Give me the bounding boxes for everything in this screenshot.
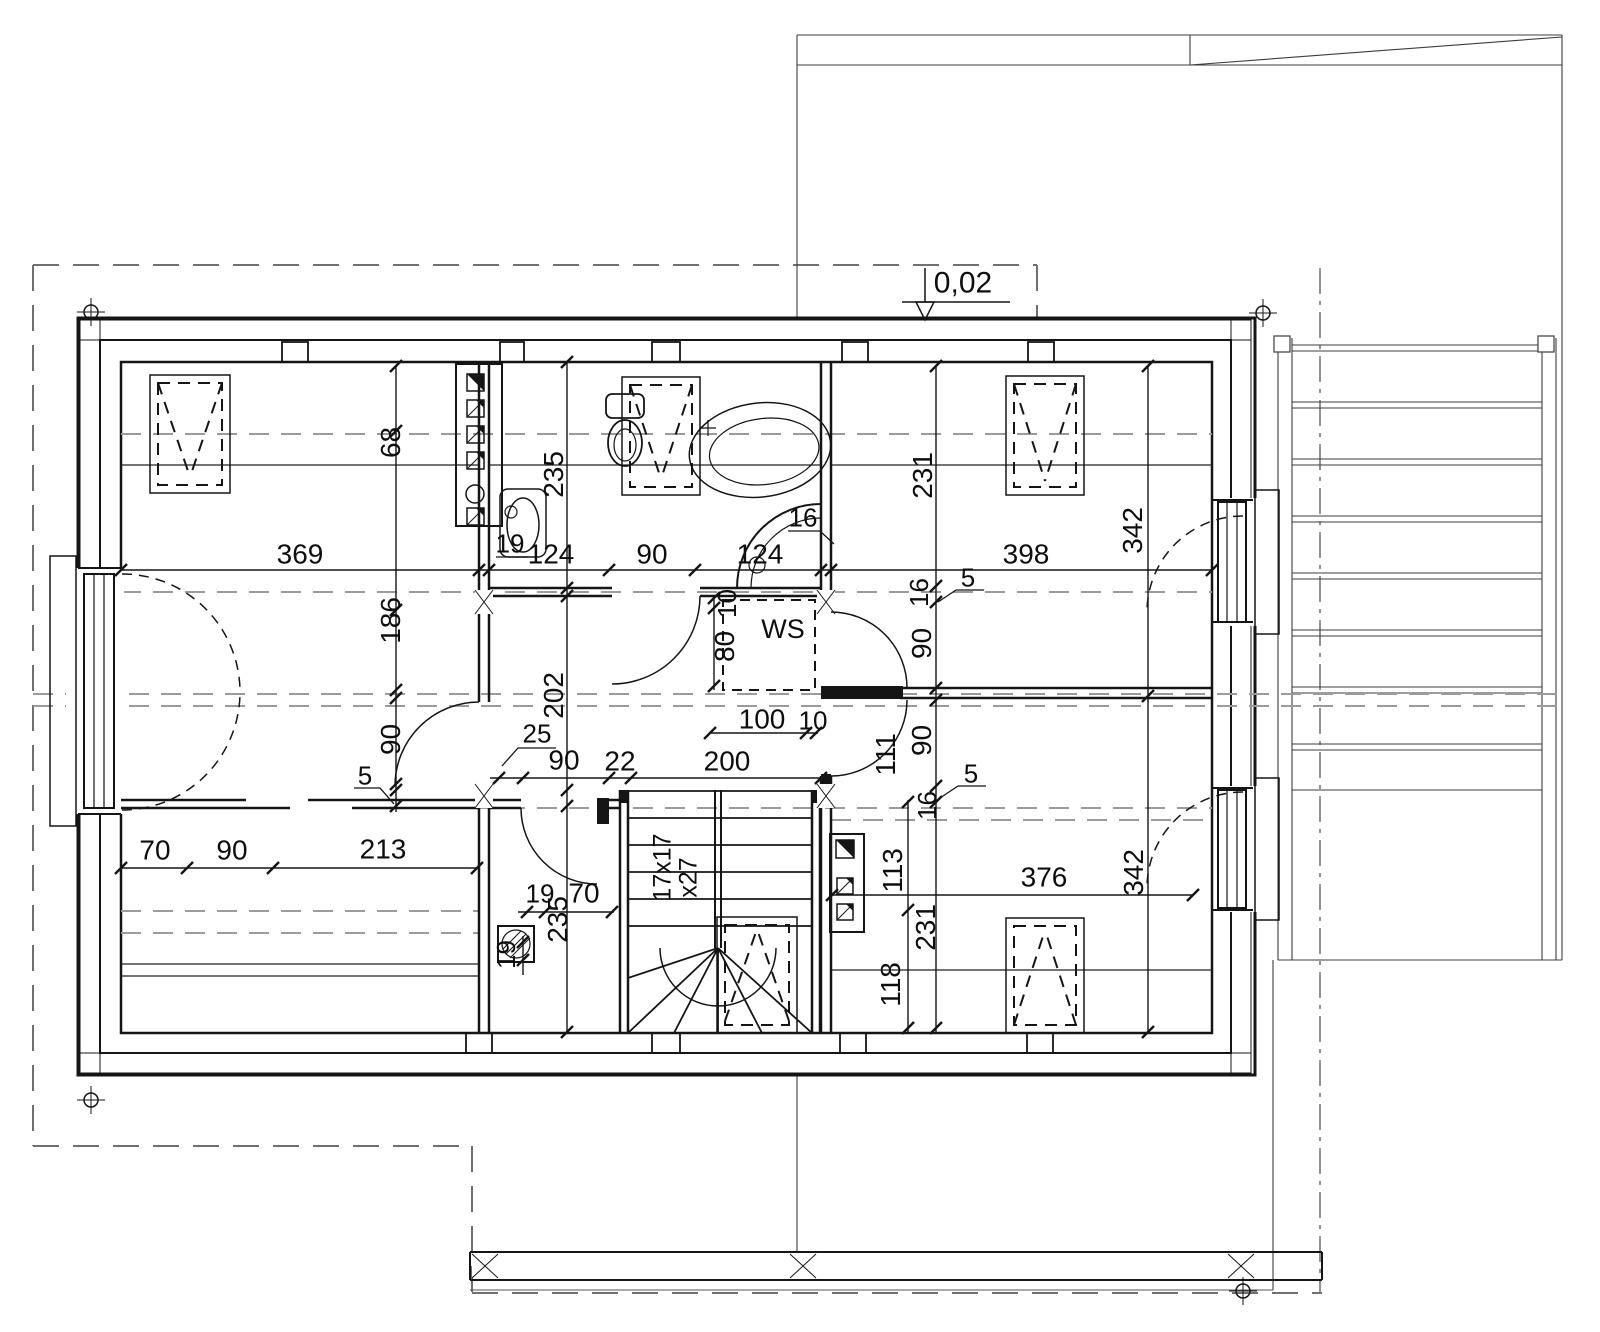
dim-5a: 5	[961, 564, 975, 590]
dim-90a: 90	[636, 540, 667, 568]
dim-100: 100	[739, 705, 786, 733]
dim-231b: 231	[912, 904, 940, 951]
dim-90left: 90	[377, 724, 405, 755]
dim-25: 25	[523, 720, 552, 746]
dim-186: 186	[377, 597, 405, 644]
dim-19wc: 19	[496, 530, 525, 556]
dim-369: 369	[277, 540, 324, 568]
dim-68: 68	[377, 427, 405, 458]
dim-10b: 10	[799, 707, 828, 733]
dim-5left: 5	[358, 762, 372, 788]
dim-16shower: 16	[789, 504, 818, 530]
level-label: 0,02	[934, 268, 992, 298]
stair-going-label: x27	[677, 857, 702, 897]
dim-90b: 90	[908, 628, 936, 659]
dim-202: 202	[540, 672, 568, 719]
dim-80: 80	[711, 631, 739, 662]
dim-22: 22	[604, 747, 635, 775]
dim-235b: 235	[544, 896, 572, 943]
dim-16b: 16	[914, 791, 940, 820]
floor-plan-canvas: 0,02369124901243981916235681869052313421…	[0, 0, 1600, 1332]
dim-70b: 70	[568, 879, 599, 907]
closet-label: WS	[761, 616, 805, 643]
dim-113: 113	[879, 848, 907, 893]
dim-398: 398	[1003, 540, 1050, 568]
dim-90c: 90	[548, 746, 579, 774]
dim-19b: 19	[493, 940, 519, 969]
dim-90e: 90	[216, 836, 247, 864]
dim-111: 111	[872, 733, 900, 776]
dim-118: 118	[877, 962, 905, 1007]
dim-200: 200	[704, 747, 751, 775]
dim-342a: 342	[1119, 507, 1147, 554]
dim-342b: 342	[1120, 849, 1148, 896]
dim-213: 213	[360, 835, 407, 863]
stair-riser-label: 17x17	[651, 833, 676, 901]
dim-124b: 124	[737, 540, 784, 568]
dim-376: 376	[1021, 863, 1068, 891]
dim-235a: 235	[540, 451, 568, 498]
dim-5b: 5	[964, 760, 978, 786]
dim-16a: 16	[906, 578, 932, 607]
labels-layer: 0,02369124901243981916235681869052313421…	[0, 0, 1600, 1332]
dim-90d: 90	[908, 725, 936, 756]
dim-10ws: 10	[714, 589, 740, 618]
dim-124a: 124	[528, 540, 575, 568]
dim-70a: 70	[139, 836, 170, 864]
dim-231a: 231	[909, 452, 937, 499]
